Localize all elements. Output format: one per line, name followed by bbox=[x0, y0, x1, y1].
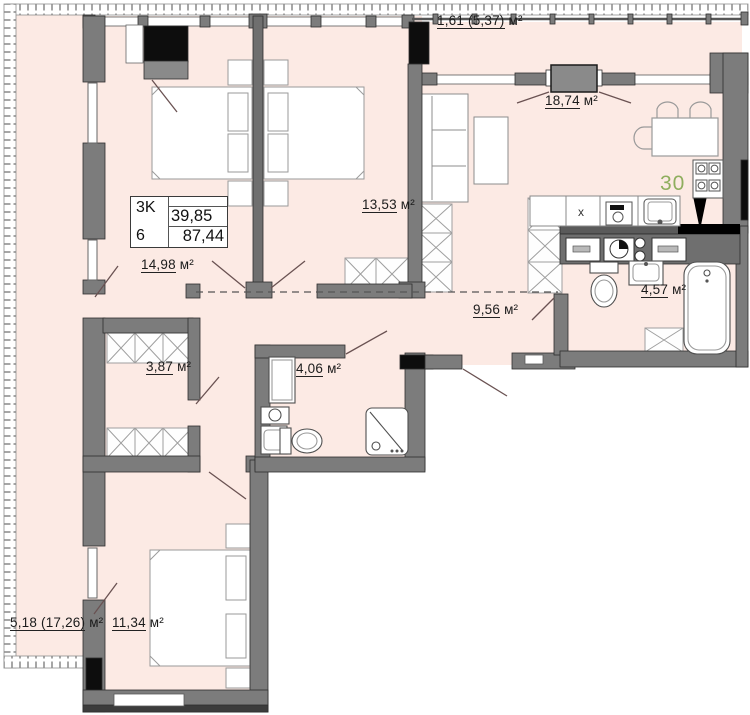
apartment-number: 30 bbox=[660, 172, 685, 196]
room-label-terrace: 5,18 (17,26)м² bbox=[10, 615, 103, 630]
room-label-bedroom-1: 14,98м² bbox=[141, 257, 194, 272]
sofa bbox=[416, 94, 468, 202]
room-label-bedroom-2: 13,53м² bbox=[362, 197, 415, 212]
apartment-type: 3K bbox=[136, 199, 168, 217]
room-label-bathroom: 4,57м² bbox=[641, 282, 686, 297]
kitchen-counter bbox=[530, 196, 680, 226]
room-label-corridor: 9,56м² bbox=[473, 302, 518, 317]
toilet-tank bbox=[590, 262, 618, 273]
entrance-door-bar bbox=[678, 224, 740, 234]
room-label-shower-room: 4,06м² bbox=[296, 361, 341, 376]
toilet-tank bbox=[280, 428, 291, 454]
info-box-spacer bbox=[169, 197, 227, 207]
counter-mark: x bbox=[578, 205, 584, 219]
apartment-entrance: 6 bbox=[136, 227, 168, 245]
total-area-value: 87,44 bbox=[169, 227, 227, 247]
living-area-value: 39,85 bbox=[169, 207, 227, 227]
apartment-info-box: 3K 6 39,85 87,44 bbox=[130, 196, 228, 248]
room-label-balcony: 1,61 (5,37)м² bbox=[437, 13, 523, 28]
floor-plan-drawing: x bbox=[0, 0, 750, 715]
floor-plan: x bbox=[0, 0, 750, 715]
room-label-kitchen-living: 18,74м² bbox=[545, 93, 598, 108]
coffee-table bbox=[474, 117, 508, 184]
stove bbox=[693, 160, 723, 198]
vent-shafts bbox=[566, 238, 686, 261]
room-label-closet: 3,87м² bbox=[146, 359, 191, 374]
room-label-bedroom-3: 11,34м² bbox=[112, 615, 164, 630]
